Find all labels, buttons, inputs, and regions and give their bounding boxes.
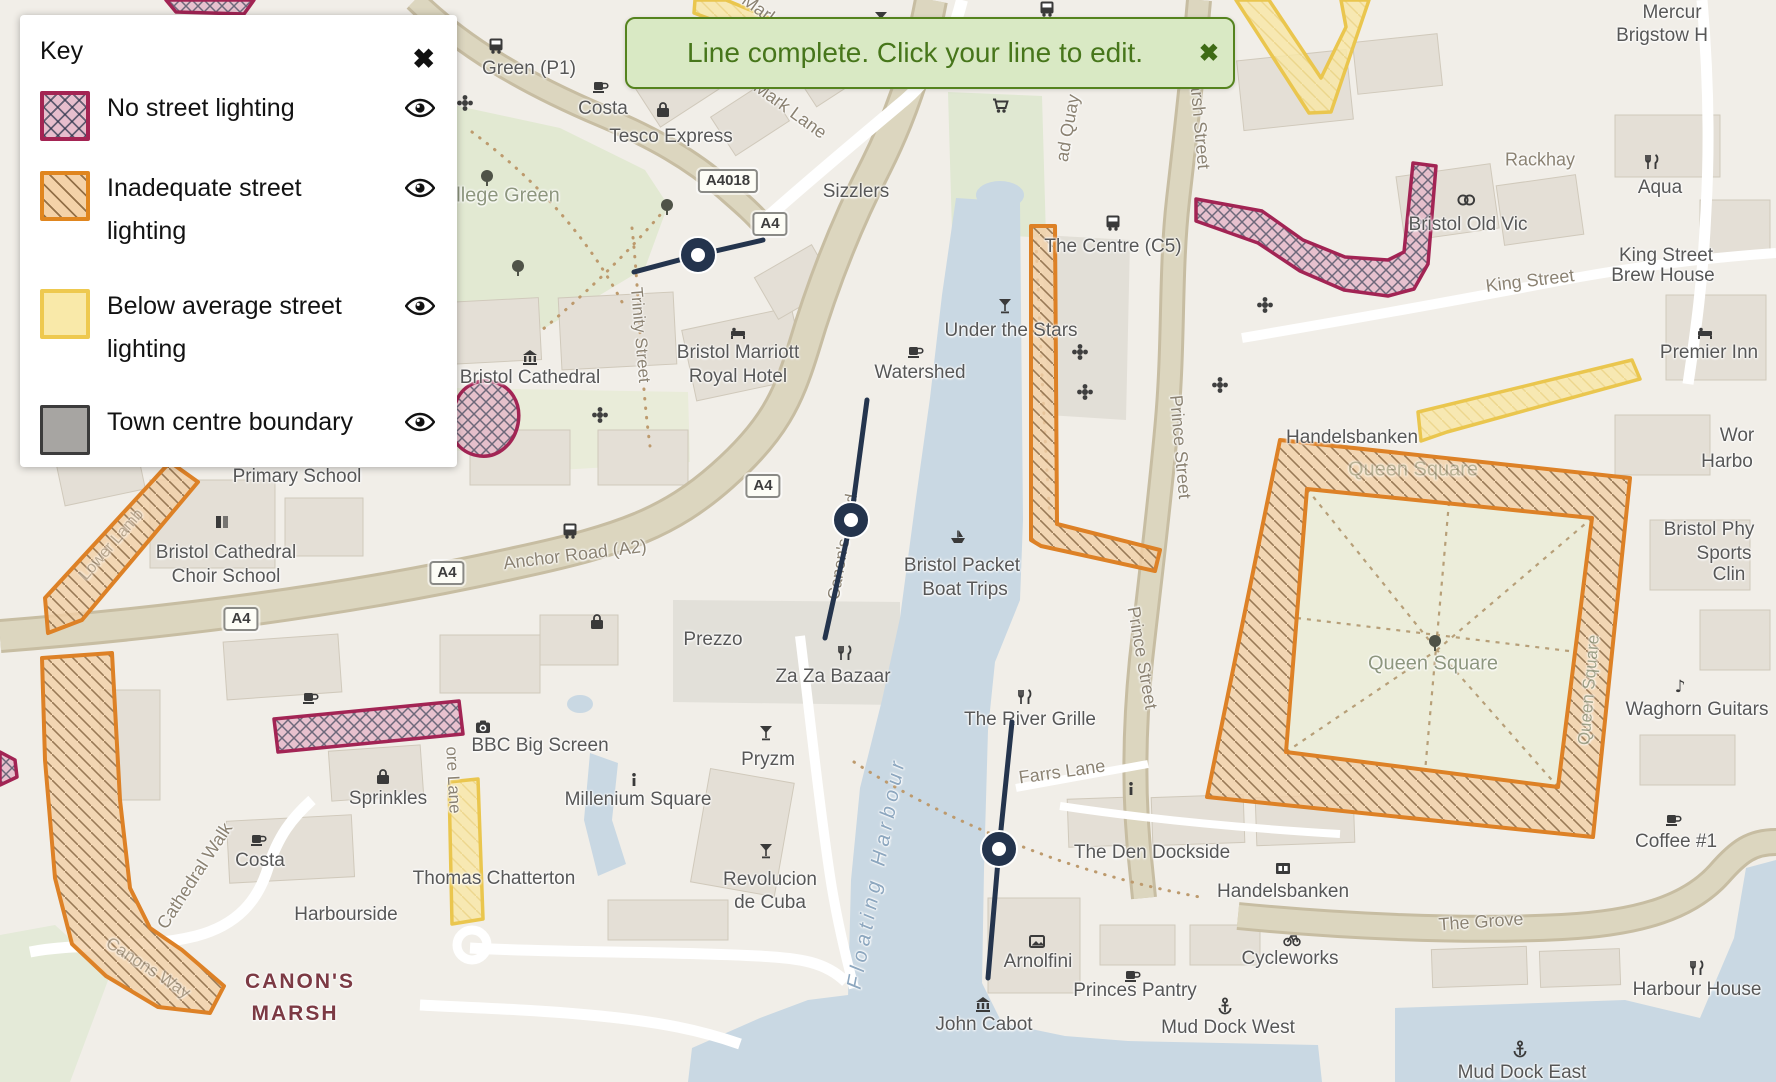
visibility-eye-icon[interactable] [405, 177, 435, 204]
map-label: Boat Trips [922, 579, 1008, 601]
map-label: Mercur [1642, 2, 1701, 24]
map-label: Anchor Road (A2) [502, 536, 648, 574]
map-label: Bristol Phy [1664, 519, 1755, 541]
road-badge: A4018 [698, 169, 758, 193]
toast-close-button[interactable]: ✖ [1199, 39, 1219, 68]
map-label: Queen Square [1368, 653, 1498, 676]
legend-title: Key [40, 37, 435, 65]
map-label: Bristol Cathedral [156, 542, 296, 564]
map-label: BBC Big Screen [471, 735, 608, 757]
map-label: Bristol Marriott [677, 342, 799, 364]
map-label: ore Lane [441, 746, 464, 814]
map-label: Costa [235, 850, 285, 872]
legend-item-inadequate-lighting: Inadequate street lighting [40, 171, 435, 253]
map-label: Wor [1720, 425, 1754, 447]
map-label: Za Za Bazaar [775, 666, 890, 688]
map-label: Thomas Chatterton [413, 868, 576, 890]
map-label: Prince Street [1165, 394, 1195, 499]
map-label: Canons Way [102, 933, 194, 1002]
road-badge: A4 [429, 561, 464, 585]
visibility-eye-icon[interactable] [405, 295, 435, 322]
map-label: King Street [1485, 265, 1576, 297]
legend-item-label: No street lighting [107, 87, 363, 130]
map-label: Watershed [874, 362, 965, 384]
map-label: Revolucion [723, 869, 817, 891]
below-average-lighting-swatch [40, 289, 90, 339]
map-label: Cathedral Walk [153, 819, 237, 933]
map-label: The Den Dockside [1074, 842, 1230, 864]
map-label: Bristol Packet [904, 555, 1020, 577]
map-label: Primary School [233, 466, 362, 488]
map-label: Lower Lamb [76, 506, 147, 584]
map-label: Brew House [1611, 265, 1715, 287]
map-label: Brigstow H [1616, 25, 1708, 47]
road-badge: A4 [752, 212, 787, 236]
legend-item-label: Town centre boundary [107, 401, 363, 444]
map-label: Aqua [1638, 177, 1682, 199]
map-label: Premier Inn [1660, 342, 1758, 364]
map-label: Harbourside [294, 904, 398, 926]
map-label: The River Grille [964, 709, 1096, 731]
map-label: Sprinkles [349, 788, 427, 810]
legend-close-button[interactable]: ✖ [412, 47, 435, 71]
map-label: Arnolfini [1004, 951, 1073, 973]
map-label: Rackhay [1505, 150, 1575, 171]
map-label: Bristol Old Vic [1409, 214, 1528, 236]
map-label: Tesco Express [609, 126, 733, 148]
map-app: ♪ [0, 0, 1776, 1082]
map-label: Millenium Square [565, 789, 712, 811]
visibility-eye-icon[interactable] [405, 411, 435, 438]
map-label: Royal Hotel [689, 366, 787, 388]
map-label: Harbour House [1633, 979, 1762, 1001]
map-label: Cycleworks [1241, 948, 1338, 970]
map-label: Farrs Lane [1017, 756, 1106, 789]
map-label: MARSH [252, 1002, 339, 1026]
map-label: Prince Street [1123, 605, 1162, 711]
map-label: Mud Dock East [1458, 1062, 1587, 1082]
map-label: de Cuba [734, 892, 806, 914]
map-label: The Centre (C5) [1044, 236, 1181, 258]
map-label: Sizzlers [823, 181, 890, 203]
legend-item-no-street-lighting: No street lighting [40, 91, 435, 141]
map-label: Harbo [1701, 451, 1753, 473]
map-label: Clin [1713, 564, 1746, 586]
legend-item-town-centre-boundary: Town centre boundary [40, 405, 435, 455]
map-label: Trinity Street [626, 286, 654, 383]
map-label: Handelsbanken [1286, 427, 1418, 449]
map-label: Queen Square [1574, 634, 1604, 746]
map-label: Coffee #1 [1635, 831, 1717, 853]
map-label: Handelsbanken [1217, 881, 1349, 903]
map-label: CANON'S [245, 970, 355, 994]
map-label: Waghorn Guitars [1626, 699, 1769, 721]
inadequate-lighting-swatch [40, 171, 90, 221]
map-label: Under the Stars [944, 320, 1077, 342]
map-label: Mud Dock West [1161, 1017, 1295, 1039]
map-label: Bristol Cathedral [460, 367, 600, 389]
map-label: Prezzo [683, 629, 742, 651]
legend-panel: Key ✖ No street lighting Inadequate stre… [20, 15, 457, 467]
map-label: Princes Pantry [1073, 980, 1197, 1002]
map-label: Pryzm [741, 749, 795, 771]
legend-item-label: Inadequate street lighting [107, 167, 363, 253]
map-label: John Cabot [935, 1014, 1032, 1036]
map-label: Costa [578, 98, 628, 120]
map-label: Floating Harbour [843, 755, 912, 992]
map-label: Canon's Road [824, 492, 862, 601]
town-centre-boundary-swatch [40, 405, 90, 455]
map-label: Sports [1697, 543, 1752, 565]
map-label: King Street [1619, 245, 1713, 267]
line-complete-toast: Line complete. Click your line to edit. … [625, 17, 1235, 89]
legend-item-below-average-lighting: Below average street lighting [40, 289, 435, 371]
toast-message: Line complete. Click your line to edit. [687, 37, 1173, 69]
map-label: ad Quay [1052, 93, 1084, 164]
map-label: The Grove [1438, 909, 1524, 936]
map-label: Queen Square [1348, 459, 1478, 482]
visibility-eye-icon[interactable] [405, 97, 435, 124]
no-street-lighting-swatch [40, 91, 90, 141]
legend-item-label: Below average street lighting [107, 285, 363, 371]
map-label: Choir School [172, 566, 281, 588]
map-label: llege Green [456, 185, 559, 208]
road-badge: A4 [223, 607, 258, 631]
road-badge: A4 [745, 474, 780, 498]
map-label: Green (P1) [482, 58, 576, 80]
